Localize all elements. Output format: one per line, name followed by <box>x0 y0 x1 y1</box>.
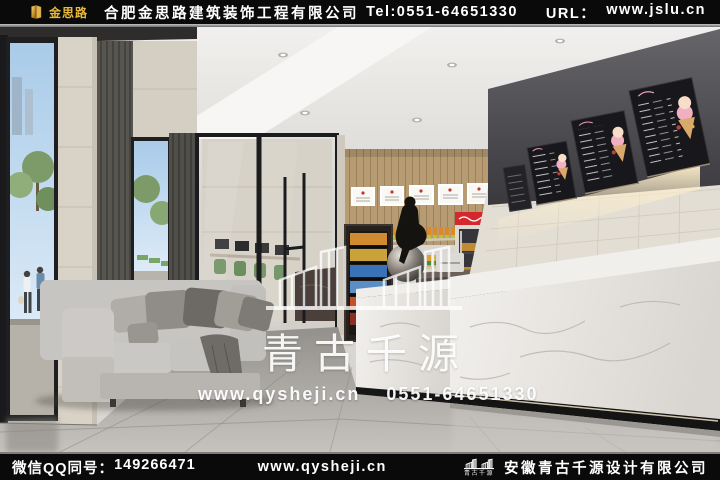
wechat-qq-number: 149266471 <box>114 457 196 478</box>
design-company-name: 安徽青古千源设计有限公司 <box>504 457 708 478</box>
header-bar: 金思路 合肥金思路建筑装饰工程有限公司 Tel:0551-64651330 UR… <box>0 0 720 24</box>
certificate-frames <box>352 184 490 205</box>
promo-render-poster: 金思路 合肥金思路建筑装饰工程有限公司 Tel:0551-64651330 UR… <box>0 0 720 480</box>
url-label: URL： <box>546 2 596 23</box>
rendered-scene <box>0 27 720 452</box>
curtain <box>97 41 133 317</box>
wechat-qq-label: 微信QQ同号： <box>12 457 114 478</box>
footer-logo: 青古千源 <box>464 457 494 477</box>
interior-rendering: 青古千源 www.qysheji.cn 0551-64651330 <box>0 27 720 452</box>
jinsilu-logo-icon <box>28 3 45 21</box>
footer-logo-caption: 青古千源 <box>464 471 494 477</box>
wechat-qq: 微信QQ同号： 149266471 <box>12 457 196 478</box>
brand-name: 金思路 <box>49 4 88 21</box>
qinggu-qianyuan-logo-icon <box>464 457 494 470</box>
footer-bar: 微信QQ同号： 149266471 www.qysheji.cn <box>0 454 720 480</box>
header-website: www.jslu.cn <box>606 2 706 23</box>
sofa <box>35 280 275 411</box>
company-name: 合肥金思路建筑装饰工程有限公司 <box>104 2 359 23</box>
footer-website: www.qysheji.cn <box>258 459 387 475</box>
brand-logo: 金思路 <box>28 3 88 21</box>
design-studio: 青古千源 安徽青古千源设计有限公司 <box>464 457 708 478</box>
header-phone: Tel:0551-64651330 <box>366 4 518 20</box>
